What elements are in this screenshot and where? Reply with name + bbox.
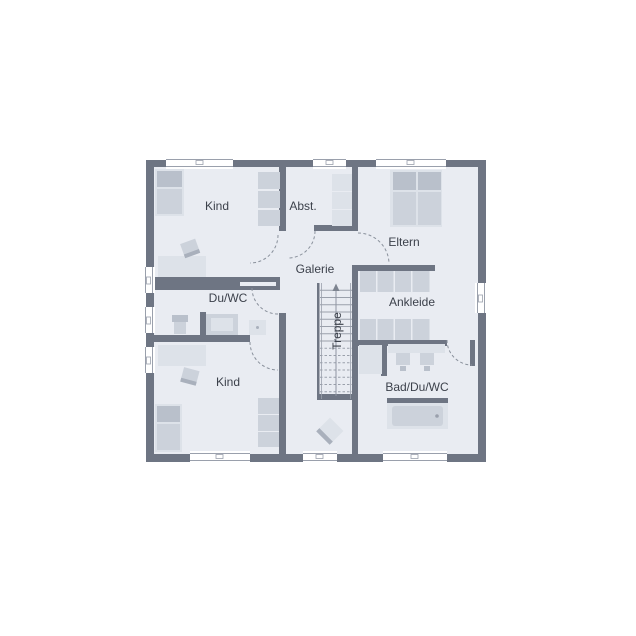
room-label-treppe: Treppe <box>330 312 344 350</box>
window <box>376 157 446 169</box>
window <box>303 451 337 463</box>
bad-door-leaf <box>470 340 475 366</box>
vanity-sink <box>206 314 238 335</box>
shelf <box>332 174 352 226</box>
mattress <box>418 192 441 225</box>
window <box>143 267 155 293</box>
pocket-door-slot <box>240 282 276 286</box>
stair-wall-bottom <box>317 394 358 400</box>
room-label-kind-top: Kind <box>205 199 229 213</box>
window <box>190 451 250 463</box>
pillow <box>157 406 180 422</box>
wall-kind-corridor <box>279 313 286 454</box>
bed <box>155 169 184 216</box>
bathtub <box>387 398 448 429</box>
wall-stair-east <box>352 265 358 454</box>
room-label-bad: Bad/Du/WC <box>385 380 449 394</box>
mattress <box>393 192 416 225</box>
window <box>475 283 487 313</box>
pillow <box>418 172 441 190</box>
mattress <box>157 189 182 214</box>
wardrobe <box>258 398 279 447</box>
room-label-galerie: Galerie <box>296 262 335 276</box>
room-label-eltern: Eltern <box>388 235 419 249</box>
double-bed <box>390 170 442 227</box>
pillow <box>393 172 416 190</box>
window <box>383 451 447 463</box>
window <box>313 157 346 169</box>
desk <box>158 256 206 277</box>
room-label-duwc: Du/WC <box>209 291 248 305</box>
window <box>143 307 155 333</box>
toilet <box>172 315 188 334</box>
shower <box>249 320 266 335</box>
wall-eltern-ankleide <box>358 265 435 271</box>
stair-wall-west <box>317 283 320 399</box>
pillow <box>157 171 182 187</box>
window <box>143 347 155 373</box>
mattress <box>157 424 180 450</box>
room-label-kind-bottom: Kind <box>216 375 240 389</box>
desk <box>158 345 206 366</box>
bed <box>155 404 182 452</box>
room-label-ankleide: Ankleide <box>389 295 435 309</box>
floor-plan-canvas: Kind Abst. Eltern Galerie Du/WC Ankleide… <box>0 0 636 636</box>
duwc-partition <box>200 312 206 342</box>
wardrobe <box>258 172 280 226</box>
floor-plan: Kind Abst. Eltern Galerie Du/WC Ankleide… <box>0 0 636 636</box>
wall-kind-abst <box>279 167 286 231</box>
drain <box>435 414 439 418</box>
shower <box>359 345 382 374</box>
room-label-abst: Abst. <box>289 199 316 213</box>
window <box>166 157 233 169</box>
wall-abst-eltern <box>352 167 358 231</box>
